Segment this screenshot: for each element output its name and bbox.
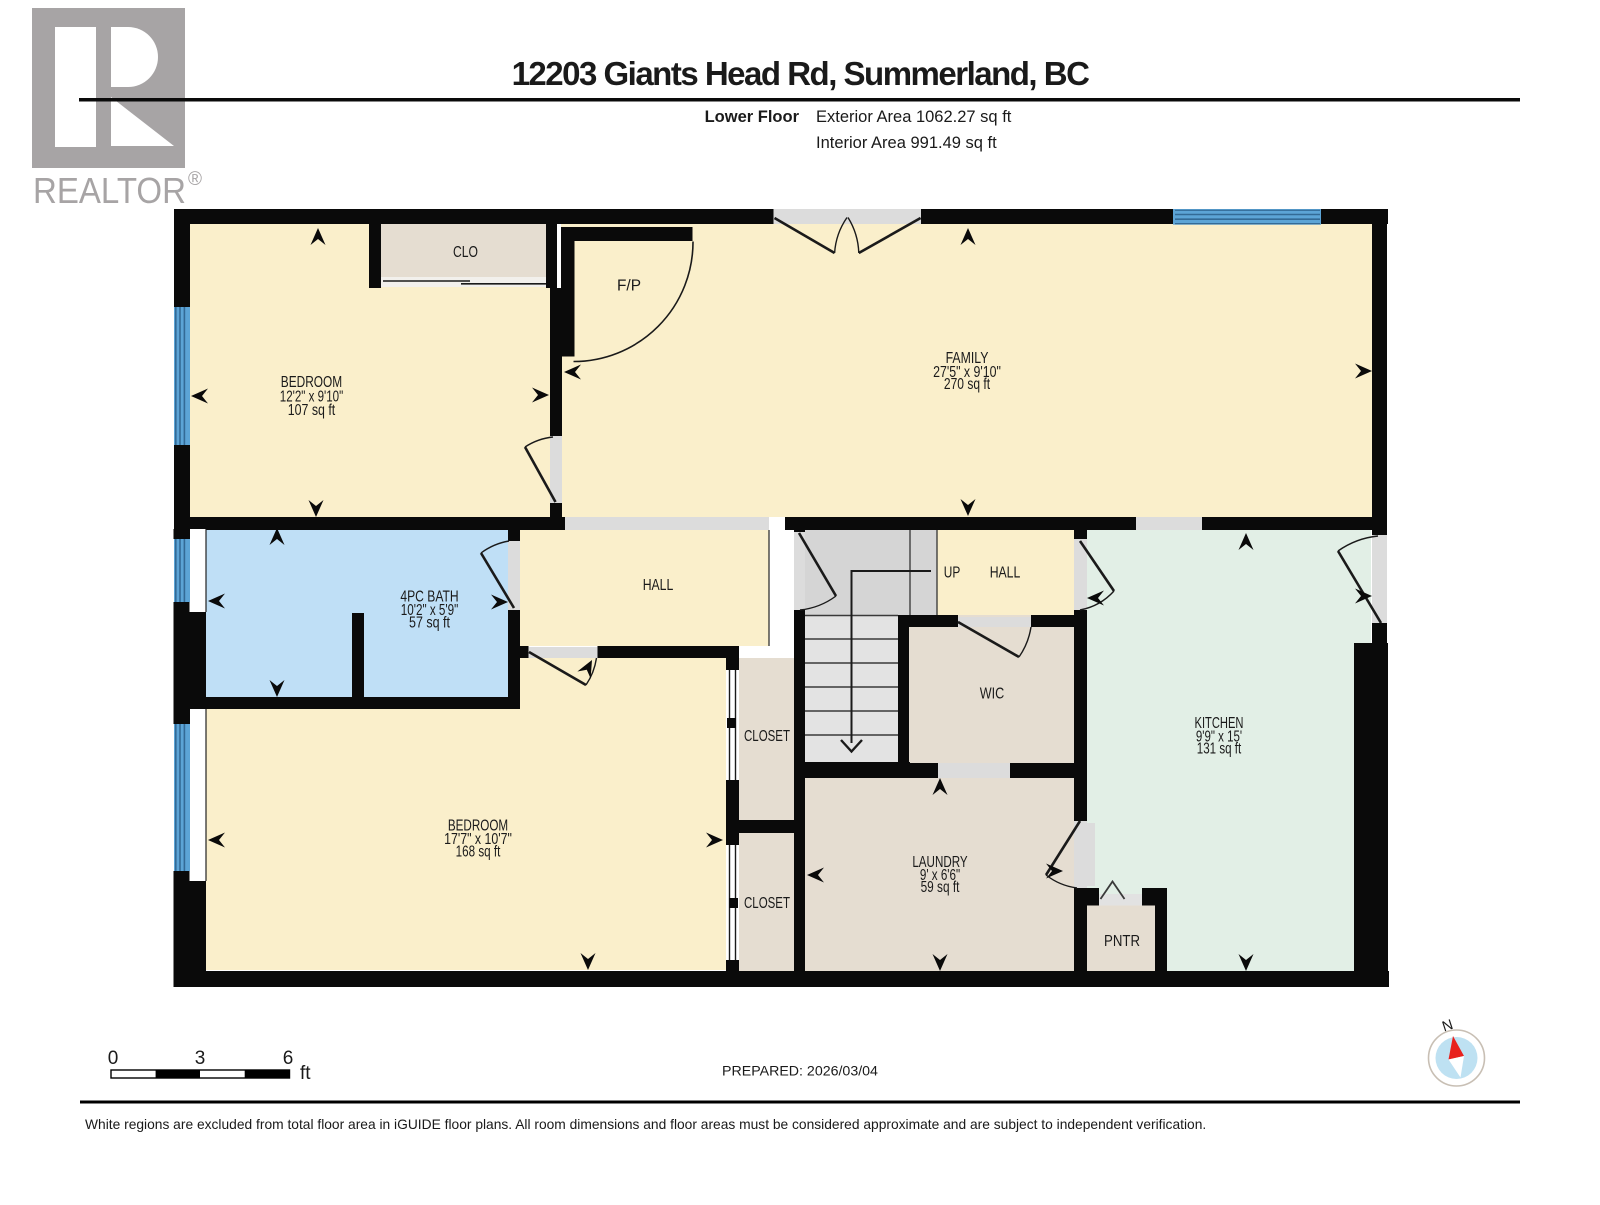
svg-text:CLO: CLO [453,244,478,261]
svg-text:12203 Giants Head Rd, Summerla: 12203 Giants Head Rd, Summerland, BC [512,55,1090,92]
svg-text:HALL: HALL [643,577,674,594]
svg-text:ft: ft [300,1063,311,1084]
svg-text:REALTOR: REALTOR [33,170,186,211]
svg-text:270 sq ft: 270 sq ft [944,376,991,393]
svg-text:6: 6 [283,1048,294,1069]
svg-text:®: ® [188,169,202,190]
svg-text:PNTR: PNTR [1104,933,1140,950]
svg-text:59 sq ft: 59 sq ft [921,879,960,896]
svg-text:131 sq ft: 131 sq ft [1197,741,1242,758]
svg-text:107 sq ft: 107 sq ft [288,402,336,419]
svg-text:WIC: WIC [980,686,1005,703]
svg-text:57 sq ft: 57 sq ft [409,614,451,631]
svg-text:HALL: HALL [990,565,1021,582]
svg-text:UP: UP [944,565,961,582]
svg-text:3: 3 [195,1048,206,1069]
svg-text:168 sq ft: 168 sq ft [456,844,501,861]
svg-text:0: 0 [108,1048,119,1069]
svg-text:White regions are excluded fro: White regions are excluded from total fl… [85,1117,1206,1132]
svg-text:CLOSET: CLOSET [744,728,790,745]
svg-text:F/P: F/P [617,278,641,295]
svg-text:Interior Area 991.49 sq ft: Interior Area 991.49 sq ft [816,134,997,152]
svg-text:Exterior Area 1062.27 sq ft: Exterior Area 1062.27 sq ft [816,108,1012,126]
svg-text:PREPARED: 2026/03/04: PREPARED: 2026/03/04 [722,1064,878,1080]
svg-text:Lower Floor: Lower Floor [705,108,800,126]
svg-text:CLOSET: CLOSET [744,895,790,912]
